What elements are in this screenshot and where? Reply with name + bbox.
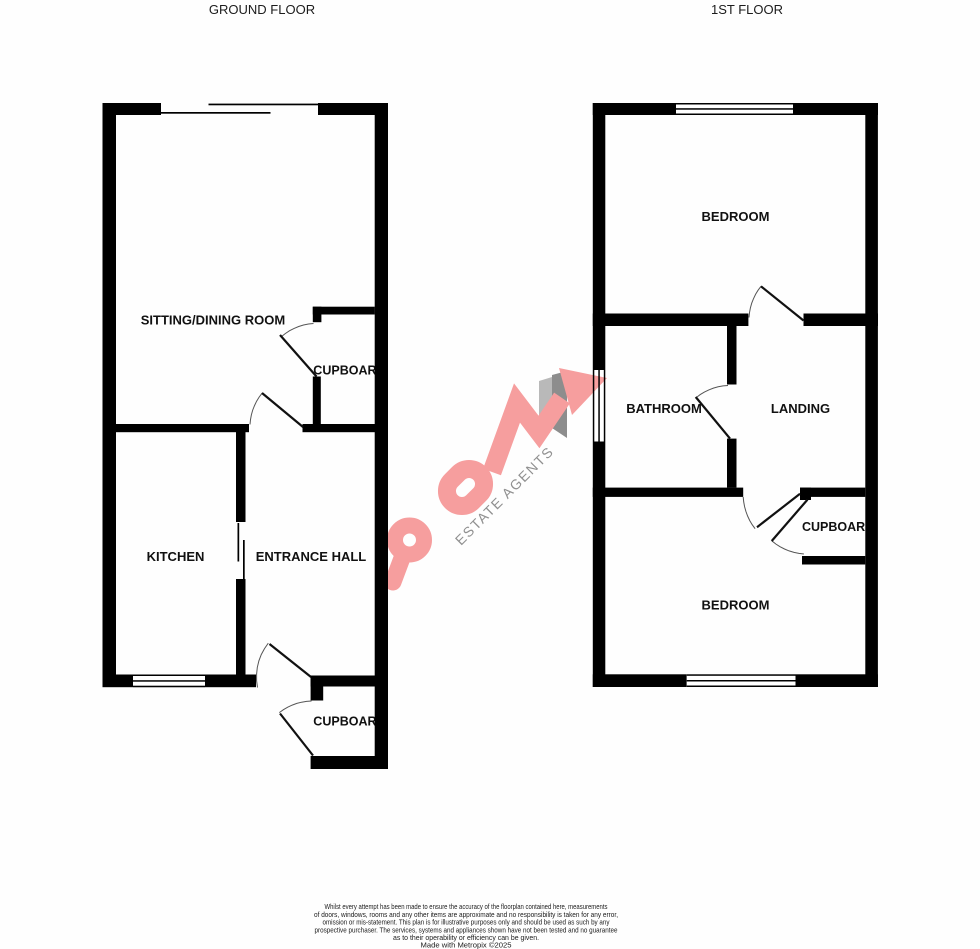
svg-text:KITCHEN: KITCHEN: [147, 549, 205, 564]
svg-text:BEDROOM: BEDROOM: [702, 598, 770, 613]
svg-text:CUPBOARD: CUPBOARD: [313, 715, 385, 729]
svg-text:CUPBOARD: CUPBOARD: [802, 520, 874, 534]
svg-text:LANDING: LANDING: [771, 401, 830, 416]
svg-text:CUPBOARD: CUPBOARD: [313, 363, 385, 377]
svg-text:SITTING/DINING ROOM: SITTING/DINING ROOM: [141, 313, 285, 328]
svg-text:BEDROOM: BEDROOM: [702, 209, 770, 224]
svg-text:BATHROOM: BATHROOM: [626, 401, 702, 416]
svg-text:ENTRANCE HALL: ENTRANCE HALL: [256, 549, 367, 564]
svg-text:GROUND FLOOR: GROUND FLOOR: [209, 2, 315, 17]
svg-text:1ST FLOOR: 1ST FLOOR: [711, 2, 783, 17]
svg-text:Made with Metropix ©2025: Made with Metropix ©2025: [421, 941, 512, 949]
